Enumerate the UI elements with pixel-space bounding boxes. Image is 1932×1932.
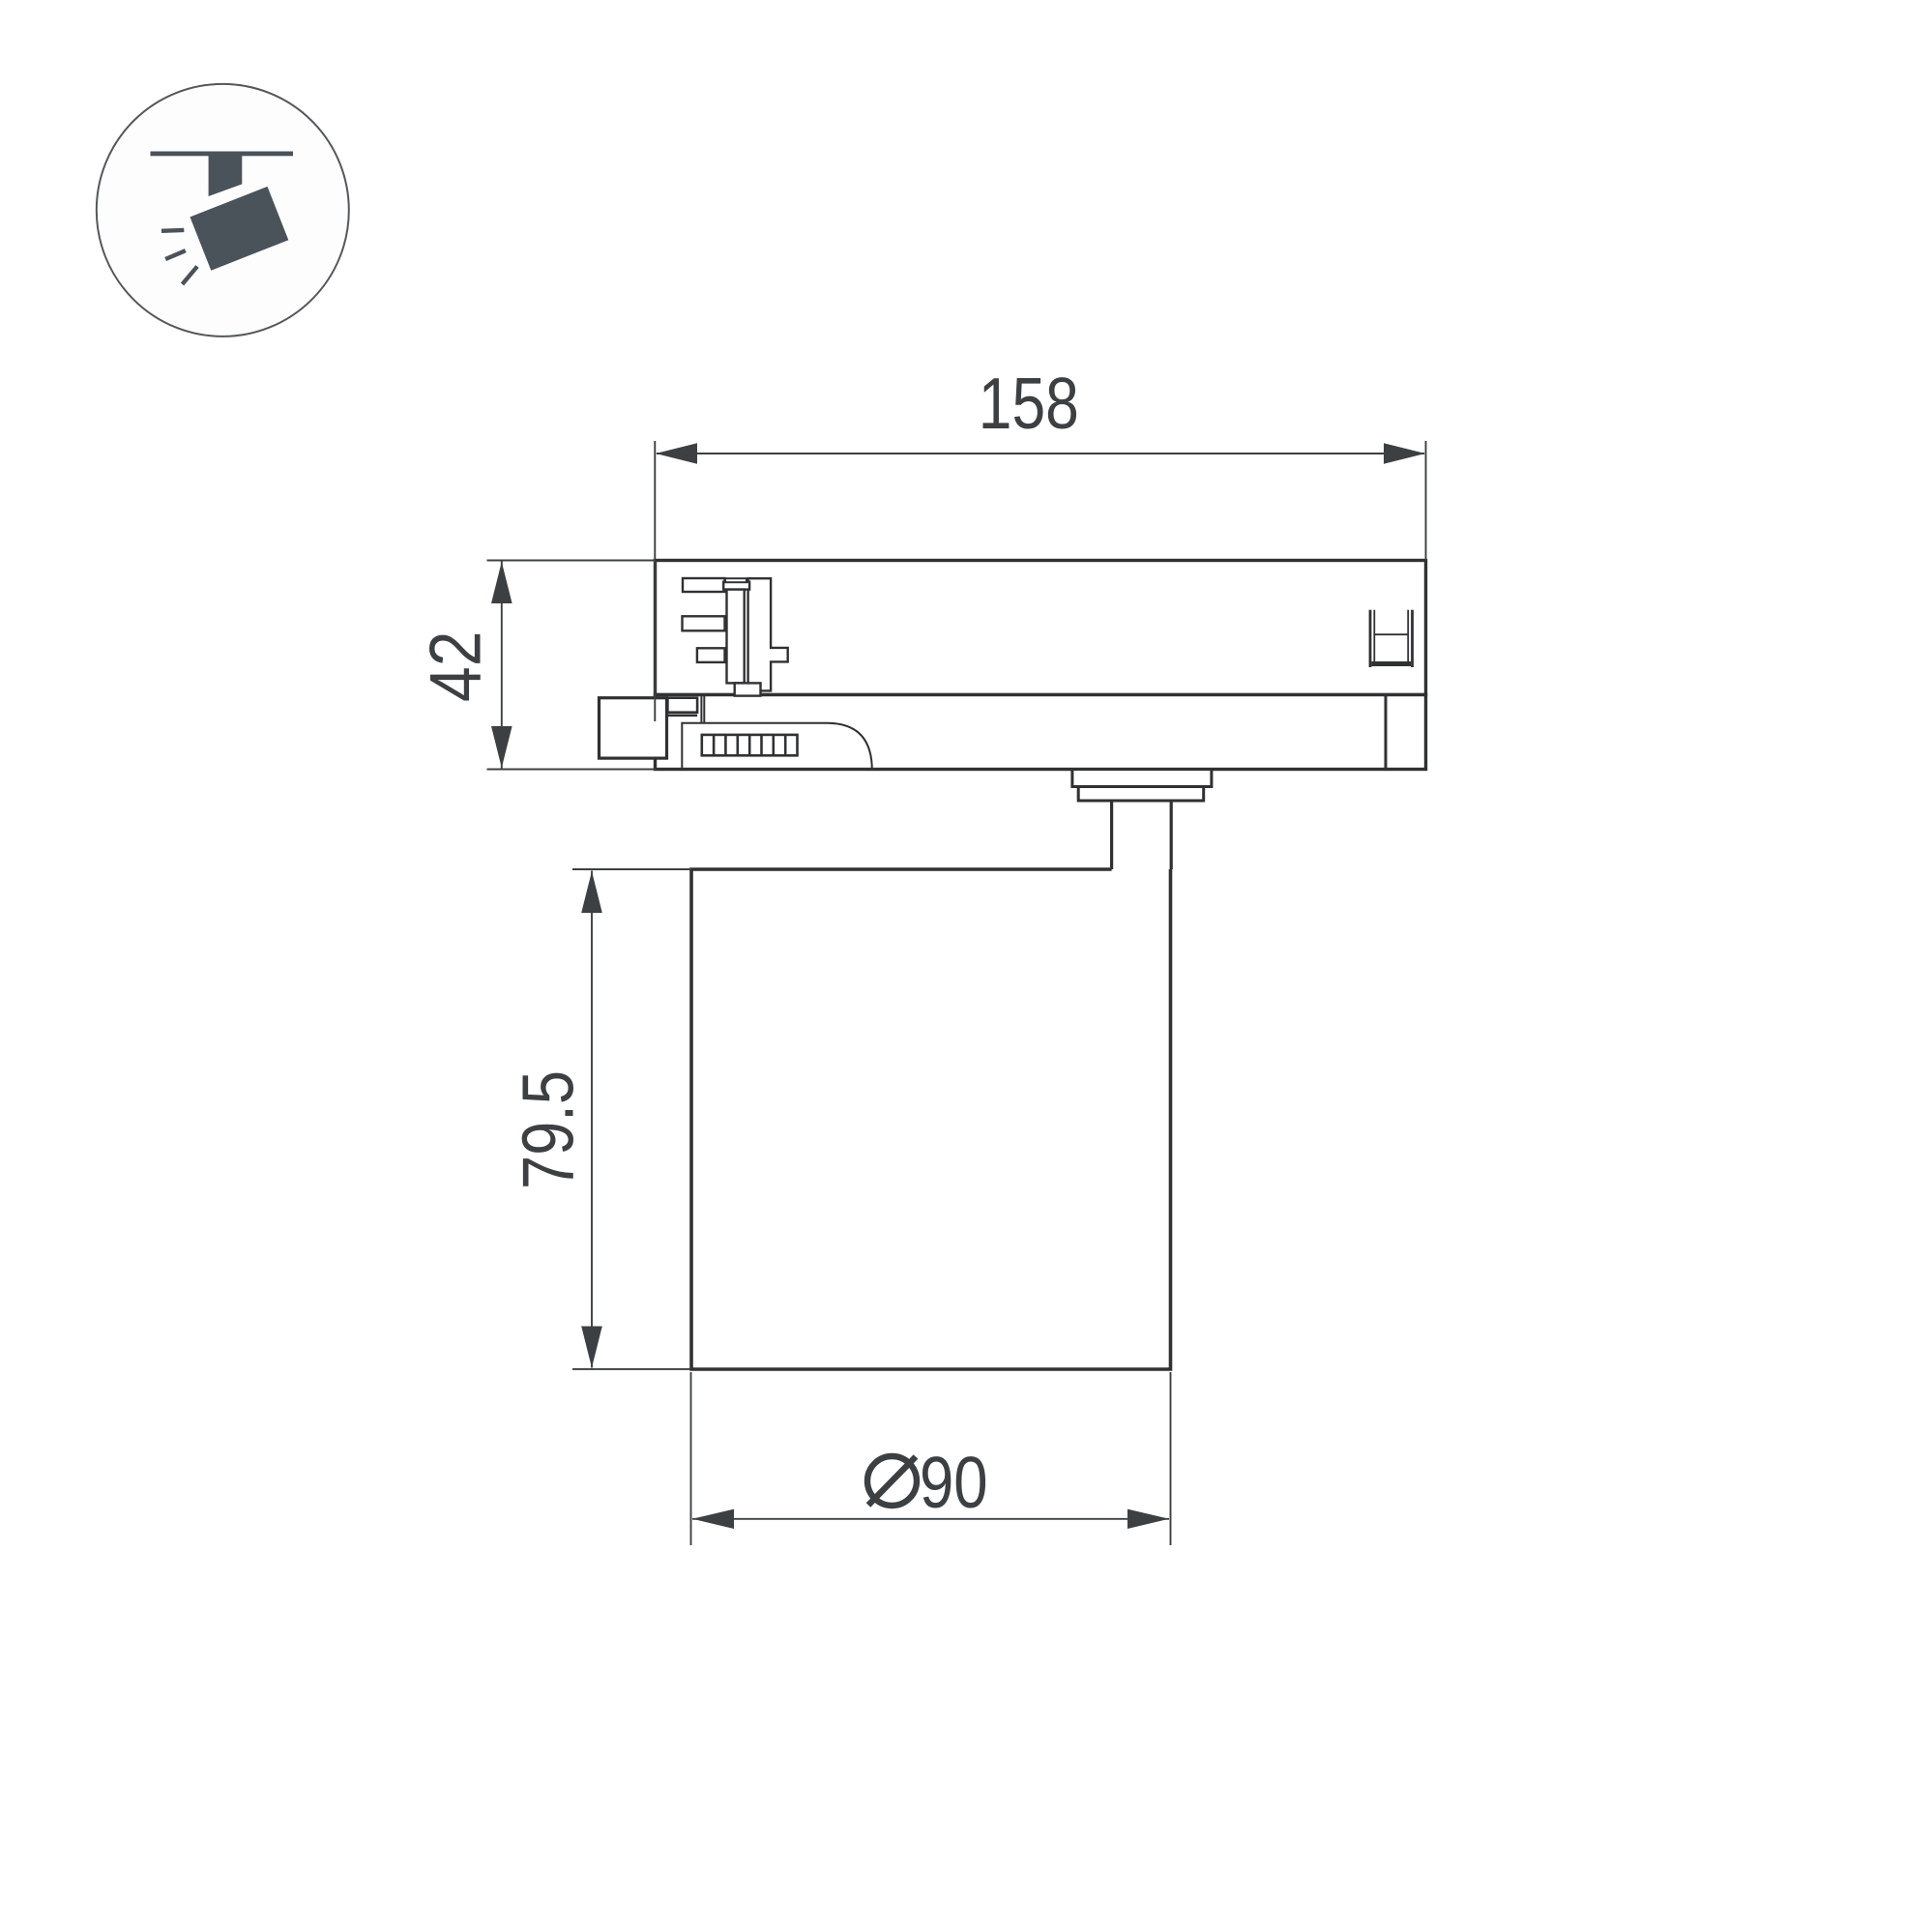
svg-text:158: 158 [979, 363, 1079, 444]
svg-text:42: 42 [415, 631, 496, 702]
svg-text:90: 90 [920, 1442, 988, 1523]
svg-text:79.5: 79.5 [508, 1070, 589, 1189]
